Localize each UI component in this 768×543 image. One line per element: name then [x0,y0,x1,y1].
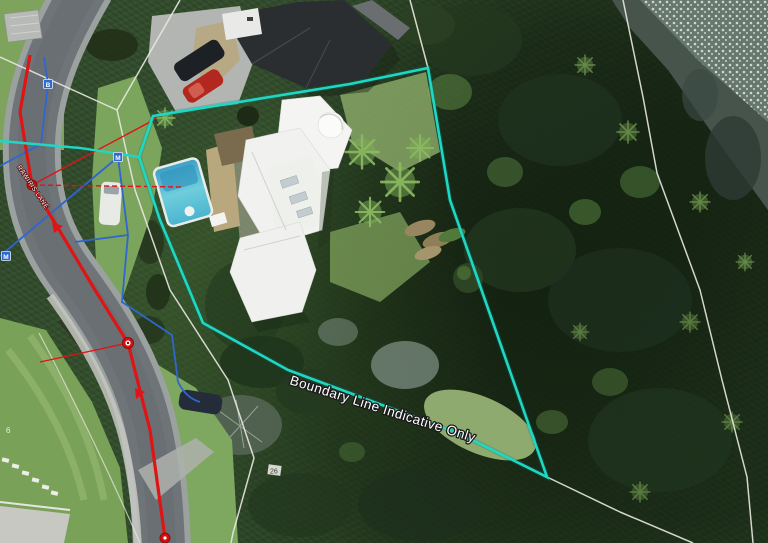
svg-text:M: M [115,155,120,162]
svg-text:M: M [3,254,8,261]
shed-roof [4,10,42,42]
lot-number-26: 26 [267,464,281,476]
map-viewport[interactable]: B M M Boundary Line Indicative Only RAWI… [0,0,768,543]
power-node-3[interactable] [160,533,170,543]
meter-marker-m1[interactable]: M [114,153,123,163]
lot-number-6: 6 [6,426,11,435]
lot-number-7: 7 [226,235,231,244]
aerial-map: B M M Boundary Line Indicative Only RAWI… [0,0,768,543]
neighbour-house-roof [222,0,410,98]
meter-marker-b[interactable]: B [44,80,53,90]
swimming-pool [153,157,214,227]
meter-marker-m2[interactable]: M [2,252,11,262]
svg-text:B: B [46,82,51,89]
svg-text:26: 26 [270,469,278,476]
power-node-2[interactable] [123,338,134,349]
